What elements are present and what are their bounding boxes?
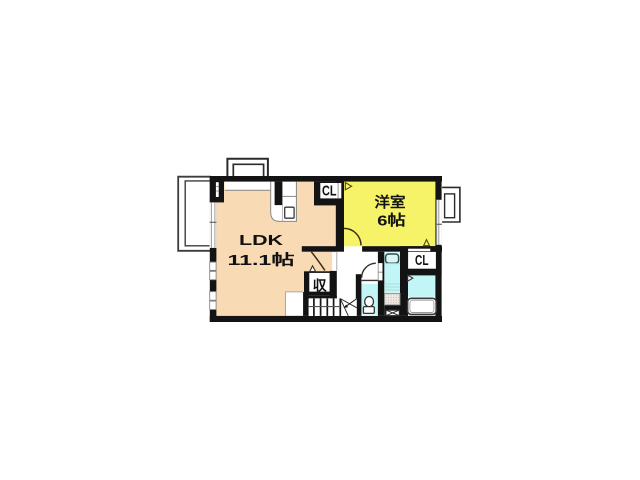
svg-text:洋室: 洋室 [375, 193, 406, 211]
svg-text:6帖: 6帖 [377, 212, 406, 230]
svg-text:11.1帖: 11.1帖 [228, 251, 296, 269]
svg-text:収: 収 [313, 277, 328, 293]
svg-text:CL: CL [322, 182, 337, 199]
svg-text:CL: CL [415, 253, 429, 269]
svg-text:LDK: LDK [239, 233, 284, 249]
